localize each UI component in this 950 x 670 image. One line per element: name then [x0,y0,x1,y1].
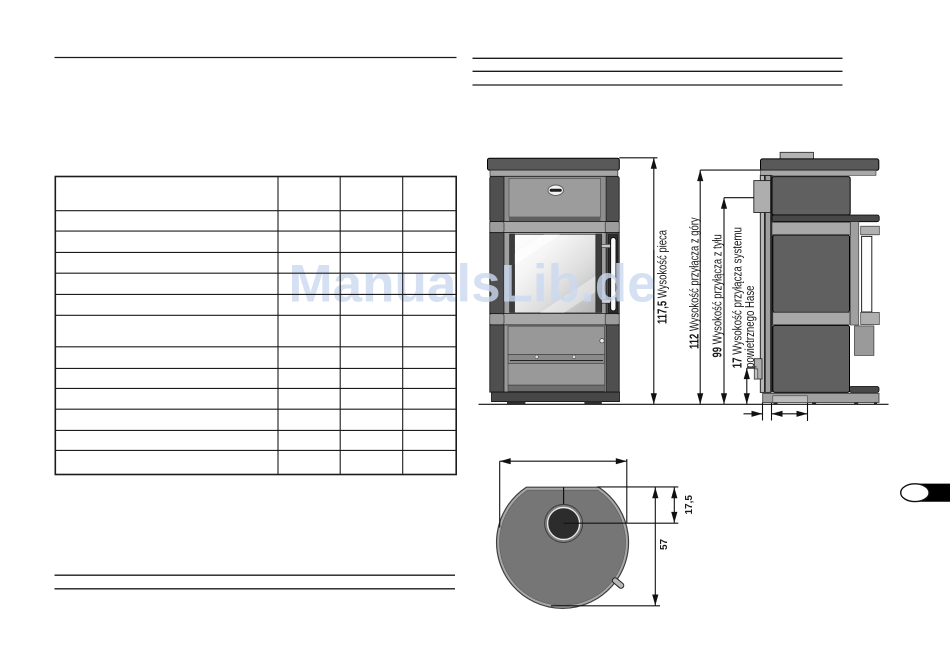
svg-text:powietrznego Hase: powietrznego Hase [742,286,757,369]
svg-text:99 Wysokość przyłącza z tyłu: 99 Wysokość przyłącza z tyłu [710,234,725,357]
svg-text:ManualsLib.de: ManualsLib.de [289,255,657,314]
svg-text:112 Wysokość przyłącza z góry: 112 Wysokość przyłącza z góry [686,217,701,349]
svg-text:117,5 Wysokość pieca: 117,5 Wysokość pieca [655,229,670,324]
svg-text:57: 57 [659,538,670,550]
svg-text:17,5: 17,5 [684,495,695,515]
